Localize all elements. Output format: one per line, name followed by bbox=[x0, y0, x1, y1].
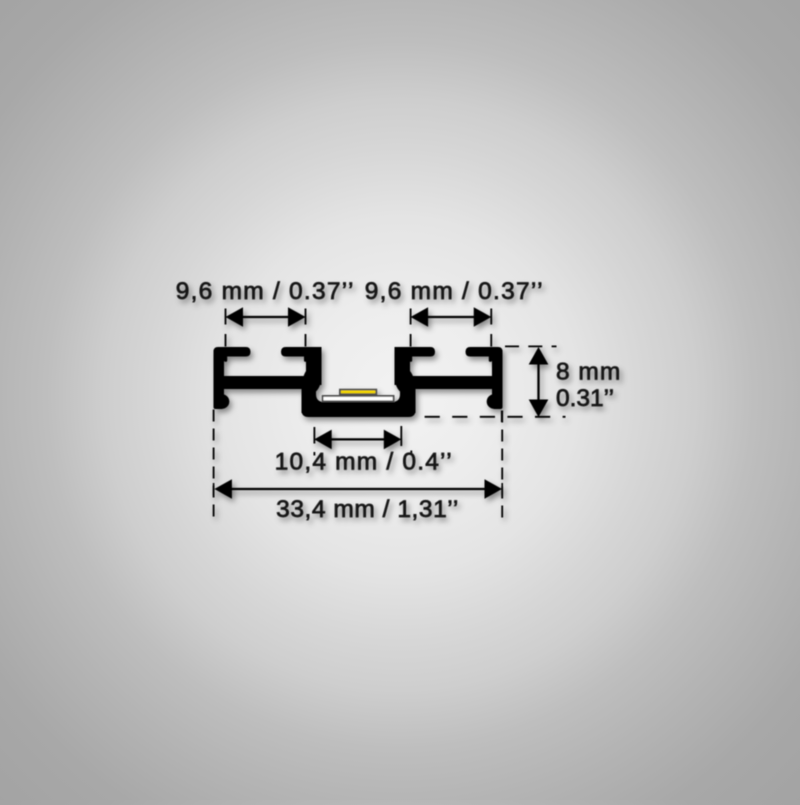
svg-text:0.31’’: 0.31’’ bbox=[556, 385, 614, 412]
svg-text:10,4 mm / 0.4’’: 10,4 mm / 0.4’’ bbox=[275, 449, 453, 476]
svg-text:8 mm: 8 mm bbox=[556, 358, 621, 385]
svg-text:9,6 mm / 0.37’’: 9,6 mm / 0.37’’ bbox=[365, 278, 544, 305]
svg-text:33,4 mm / 1,31’’: 33,4 mm / 1,31’’ bbox=[276, 496, 459, 523]
svg-text:9,6 mm / 0.37’’: 9,6 mm / 0.37’’ bbox=[176, 278, 355, 305]
